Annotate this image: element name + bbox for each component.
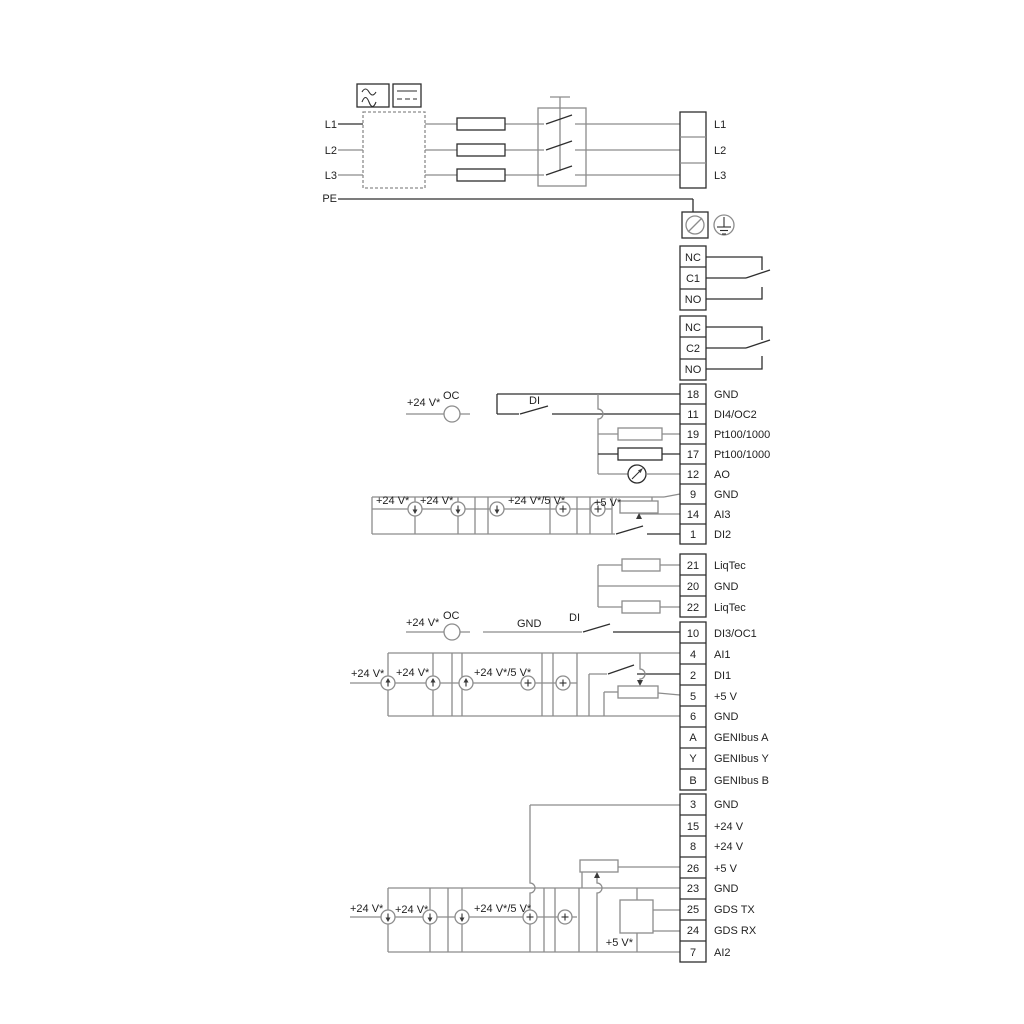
mains-wires [338, 124, 693, 212]
terminal-label: GENIbus A [714, 732, 769, 744]
io2-terminal-block: 10 4 2 5 6 A Y B DI3/OC1 AI1 DI1 +5 V GN… [680, 622, 769, 790]
fuse-l1 [457, 118, 505, 130]
terminal-num: 19 [687, 429, 699, 441]
terminal-num: 23 [687, 883, 699, 895]
plus24v-label: +24 V* [350, 903, 384, 915]
terminal-num: 6 [690, 711, 696, 723]
terminal-num: 15 [687, 821, 699, 833]
terminal-label: AI1 [714, 649, 731, 661]
liqtec-terminal-block: 21 20 22 LiqTec GND LiqTec [680, 554, 746, 617]
relay1-c1: C1 [686, 273, 700, 285]
potentiometer [580, 860, 618, 872]
terminal-label: +24 V [714, 841, 744, 853]
terminal-label: +24 V [714, 821, 744, 833]
plus24v-label: +24 V* [376, 495, 410, 507]
plus24v-label: +24 V* [407, 397, 441, 409]
mains-label-l1: L1 [325, 119, 337, 131]
mains-label-l3: L3 [325, 170, 337, 182]
pt100-resistor [618, 448, 662, 460]
di3-switch [583, 624, 610, 632]
terminal-num: 8 [690, 841, 696, 853]
open-collector-icon [444, 406, 460, 422]
terminal-num: 25 [687, 904, 699, 916]
motor-terminal-label-l2: L2 [714, 145, 726, 157]
relay2-c2: C2 [686, 343, 700, 355]
relay1-nc: NC [685, 252, 701, 264]
terminal-label: +5 V [714, 691, 738, 703]
potentiometer [618, 686, 658, 698]
terminal-label: DI2 [714, 529, 731, 541]
terminal-num: A [689, 732, 697, 744]
di1-switch [608, 665, 634, 674]
analog-output-meter-icon [628, 465, 646, 483]
di-label: DI [529, 395, 540, 407]
terminal-num: 1 [690, 529, 696, 541]
terminal-label: GND [714, 883, 739, 895]
terminal-label: GENIbus Y [714, 753, 769, 765]
terminal-label: DI3/OC1 [714, 628, 757, 640]
terminal-label: GND [714, 389, 739, 401]
oc-label: OC [443, 610, 460, 622]
oc-label: OC [443, 390, 460, 402]
terminal-label: AI3 [714, 509, 731, 521]
terminal-label: GND [714, 581, 739, 593]
plus24v-label: +24 V* [420, 495, 454, 507]
dc-type-icon [393, 84, 421, 107]
terminal-label: GND [714, 799, 739, 811]
terminal-num: 12 [687, 469, 699, 481]
terminal-num: 11 [687, 409, 698, 421]
terminal-num: 24 [687, 925, 699, 937]
relay2-contact [746, 340, 770, 348]
terminal-num: 14 [687, 509, 699, 521]
plus5v-label: +5 V* [606, 937, 634, 949]
relay2-no: NO [685, 364, 702, 376]
plus24v-label: +24 V* [351, 668, 385, 680]
di2-switch [616, 526, 643, 534]
plus24v-label: +24 V* [395, 904, 429, 916]
terminal-label: Pt100/1000 [714, 429, 770, 441]
terminal-num: 26 [687, 863, 699, 875]
terminal-num: 9 [690, 489, 696, 501]
relay2-block: NC C2 NO [680, 316, 770, 380]
terminal-num: 18 [687, 389, 699, 401]
terminal-label: LiqTec [714, 602, 746, 614]
wiper-arrow-icon [594, 872, 600, 878]
terminal-num: 7 [690, 947, 696, 959]
di-label: DI [569, 612, 580, 624]
terminal-num: 5 [690, 691, 696, 703]
open-collector-icon [444, 624, 460, 640]
plus24v-5v-label: +24 V*/5 V* [508, 495, 566, 507]
relay1-no: NO [685, 294, 702, 306]
terminal-label: GND [714, 711, 739, 723]
terminal-num: 21 [687, 560, 699, 572]
terminal-num: 2 [690, 670, 696, 682]
wiper-arrow-icon [637, 680, 643, 686]
terminal-label: LiqTec [714, 560, 746, 572]
wiring-diagram: L1 L2 L3 PE L1 L2 L3 NC C1 NO NC C2 NO [0, 0, 1024, 1024]
io1-terminal-block: 18 11 19 17 12 9 14 1 GND DI4/OC2 Pt100/… [680, 384, 770, 544]
di3-row: +24 V* OC GND DI [406, 610, 680, 640]
plus24v-5v-label: +24 V*/5 V* [474, 667, 532, 679]
relay2-nc: NC [685, 322, 701, 334]
mains-label-l2: L2 [325, 145, 337, 157]
relay1-block: NC C1 NO [680, 246, 770, 310]
terminal-label: GDS TX [714, 904, 755, 916]
terminal-num: 4 [690, 649, 696, 661]
liqtec-resistor [622, 601, 660, 613]
terminal-label: Pt100/1000 [714, 449, 770, 461]
ai1-source-row: +24 V* +24 V* +24 V*/5 V* [350, 653, 680, 716]
terminal-num: 3 [690, 799, 696, 811]
terminal-label: GENIbus B [714, 775, 769, 787]
rcd-box [363, 112, 425, 188]
pe-screw-terminal-icon [682, 212, 708, 238]
terminal-num: B [689, 775, 696, 787]
fuse-l2 [457, 144, 505, 156]
liqtec-wiring [598, 559, 680, 613]
plus24v-label: +24 V* [406, 617, 440, 629]
terminal-label: AI2 [714, 947, 731, 959]
ai2-source-row: +24 V* +24 V* +24 V*/5 V* +5 V* [350, 805, 680, 952]
liqtec-resistor [622, 559, 660, 571]
mains-label-pe: PE [322, 193, 337, 205]
terminal-num: Y [689, 753, 697, 765]
terminal-label: AO [714, 469, 730, 481]
terminal-label: DI1 [714, 670, 731, 682]
motor-terminal-label-l1: L1 [714, 119, 726, 131]
motor-terminal-block [680, 112, 706, 188]
terminal-num: 17 [687, 449, 699, 461]
earth-symbol-icon [714, 215, 734, 235]
terminal-num: 22 [687, 602, 699, 614]
relay1-contact [746, 270, 770, 278]
terminal-num: 10 [687, 628, 699, 640]
motor-terminal-label-l3: L3 [714, 170, 726, 182]
main-switch [538, 97, 586, 186]
wiring-diagram-page: L1 L2 L3 PE L1 L2 L3 NC C1 NO NC C2 NO [0, 0, 1024, 1024]
io3-terminal-block: 3 15 8 26 23 25 24 7 GND +24 V +24 V +5 … [680, 794, 757, 962]
gnd-label: GND [517, 618, 542, 630]
pt100-resistor [618, 428, 662, 440]
terminal-label: +5 V [714, 863, 738, 875]
terminal-label: GDS RX [714, 925, 757, 937]
terminal-label: GND [714, 489, 739, 501]
mains-section: L1 L2 L3 PE L1 L2 L3 [322, 84, 734, 238]
terminal-num: 20 [687, 581, 699, 593]
di4-switch [520, 406, 548, 414]
plus5v-label: +5 V* [594, 497, 622, 509]
plus24v-label: +24 V* [396, 667, 430, 679]
potentiometer [620, 501, 658, 513]
ac-type-icon [357, 84, 389, 107]
ai3-source-row: +24 V* +24 V* +24 V*/5 V* +5 V* [372, 494, 680, 534]
fuse-l3 [457, 169, 505, 181]
plus24v-5v-label: +24 V*/5 V* [474, 903, 532, 915]
terminal-label: DI4/OC2 [714, 409, 757, 421]
io1-wiring: +24 V* OC DI [406, 390, 680, 483]
